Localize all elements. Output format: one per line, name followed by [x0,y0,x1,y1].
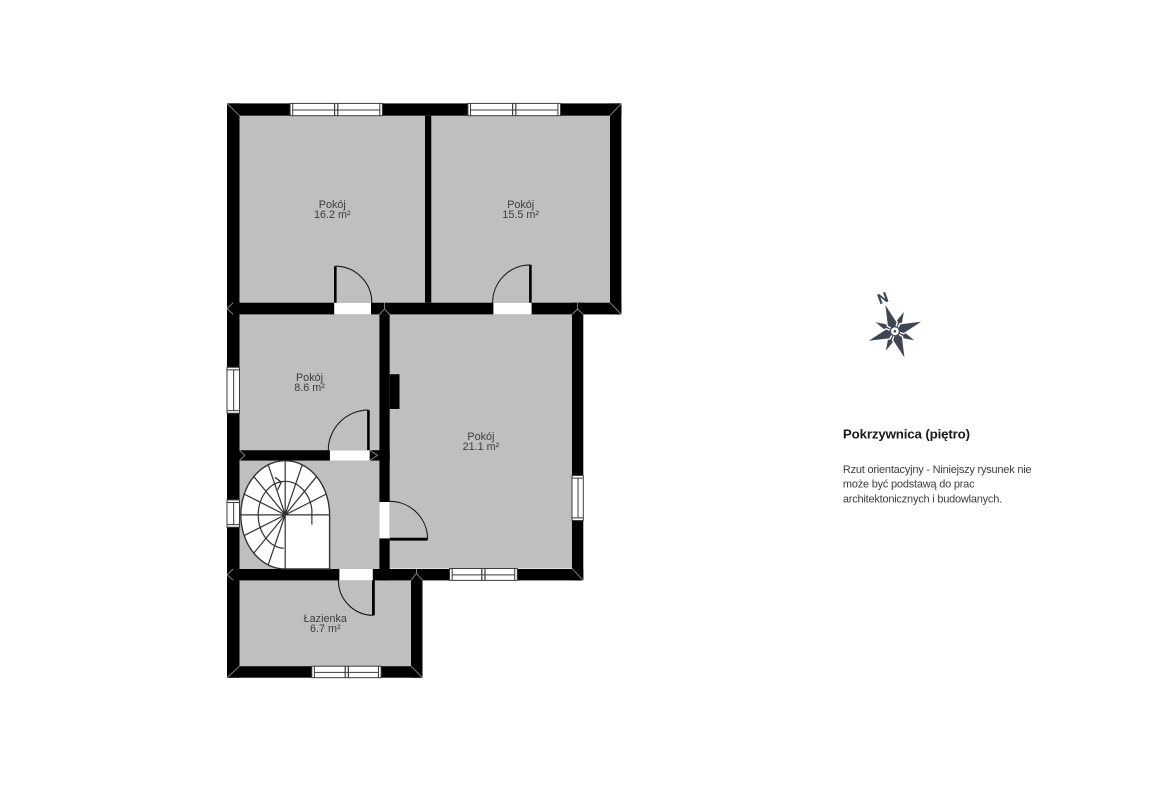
svg-text:8.6 m²: 8.6 m² [294,382,325,394]
svg-text:16.2 m²: 16.2 m² [314,209,351,221]
svg-text:6.7 m²: 6.7 m² [310,623,341,635]
svg-text:15.5 m²: 15.5 m² [502,209,539,221]
svg-text:Pokrzywnica (piętro): Pokrzywnica (piętro) [843,426,970,441]
svg-text:architektonicznych i budowlany: architektonicznych i budowlanych. [843,493,1002,505]
svg-text:Rzut orientacyjny - Niniejszy: Rzut orientacyjny - Niniejszy rysunek ni… [843,464,1032,476]
svg-text:może być podstawą do prac: może być podstawą do prac [843,479,975,491]
svg-text:21.1 m²: 21.1 m² [463,441,500,453]
